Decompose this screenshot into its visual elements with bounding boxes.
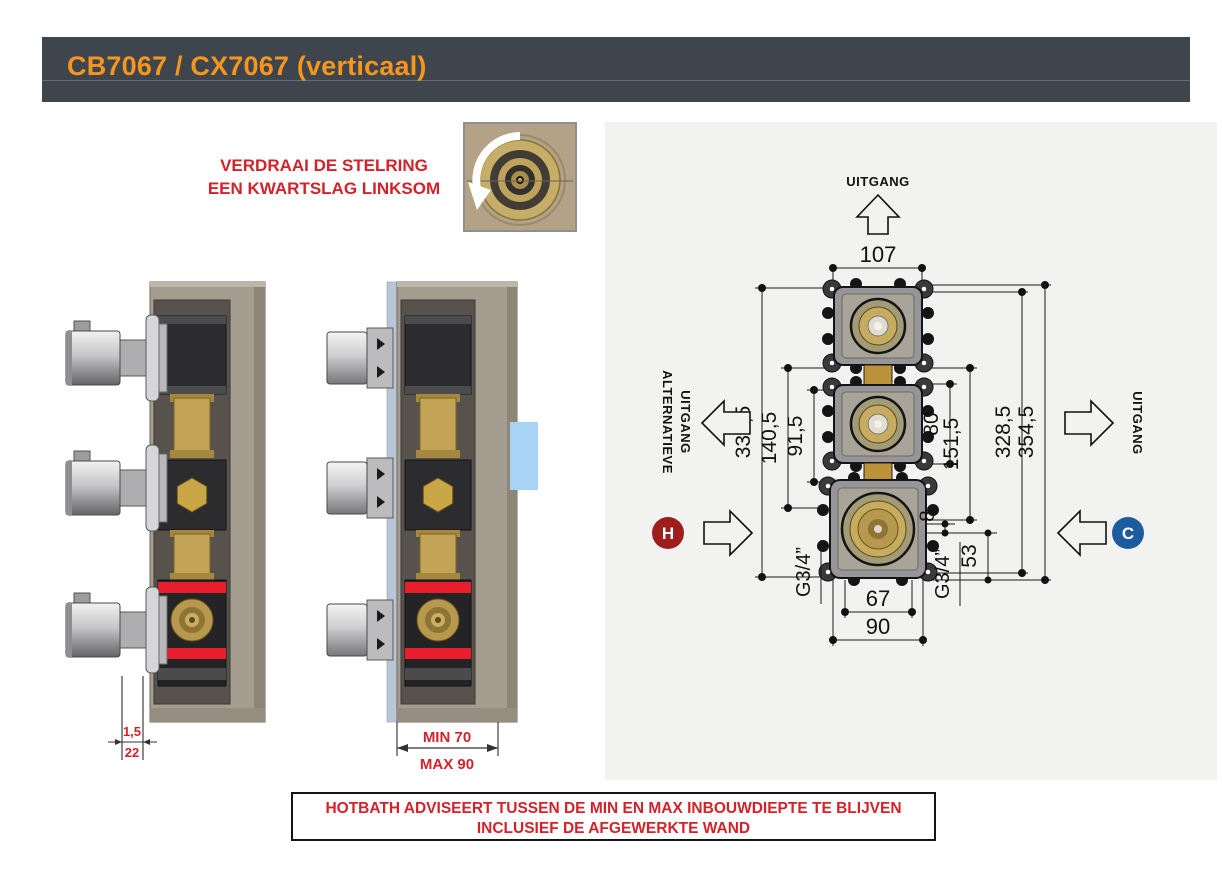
outlet-highlight (510, 422, 538, 490)
build-depth-dim: MIN 70 MAX 90 (397, 722, 498, 773)
arrow-right-icon (1065, 401, 1113, 445)
cold-label: C (1122, 524, 1134, 543)
valve-cartridge-middle (822, 376, 934, 472)
dim-53: 53 (958, 530, 992, 584)
dim-90: 90 (829, 614, 927, 644)
instruction-text: VERDRAAI DE STELRING EEN KWARTSLAG LINKS… (203, 154, 445, 200)
notice-box: HOTBATH ADVISEERT TUSSEN DE MIN EN MAX I… (291, 792, 936, 841)
thread-label-right: G3/4” (932, 542, 960, 606)
brass-connector-1 (864, 365, 892, 387)
header-bar: CB7067 / CX7067 (verticaal) (42, 37, 1190, 102)
thread-label-left: G3/4” (793, 540, 821, 604)
dimension-drawing-panel: UITGANG (605, 122, 1217, 780)
dimension-drawing: UITGANG (605, 122, 1217, 780)
red-marker-top (158, 582, 226, 593)
handle-bottom (66, 587, 167, 673)
red-marker-bottom (158, 648, 226, 659)
svg-text:67: 67 (866, 586, 890, 611)
svg-text:354,5: 354,5 (1015, 406, 1038, 459)
cartridge-stack (158, 316, 226, 686)
page-title: CB7067 / CX7067 (verticaal) (67, 51, 427, 82)
svg-text:151,5: 151,5 (940, 418, 963, 471)
instruction-line-1: VERDRAAI DE STELRING (203, 154, 445, 177)
page: CB7067 / CX7067 (verticaal) VERDRAAI DE … (0, 0, 1222, 894)
handle-top (327, 328, 393, 388)
notice-line-2: INCLUSIEF DE AFGEWERKTE WAND (293, 819, 934, 839)
dim-22: 22 (125, 745, 139, 760)
dim-max-90: MAX 90 (420, 756, 474, 773)
red-marker-top (405, 582, 471, 593)
svg-text:107: 107 (860, 242, 897, 267)
stelring-image (465, 124, 575, 230)
handle-middle (327, 458, 393, 518)
svg-text:G3/4”: G3/4” (932, 549, 954, 599)
handle-bottom (327, 600, 393, 660)
dim-1-5: 1,5 (123, 724, 141, 739)
cartridge-stack (405, 316, 471, 686)
handle-middle (66, 445, 167, 531)
svg-text:90: 90 (866, 614, 890, 639)
side-view-finished: 1,5 22 (62, 276, 272, 768)
dim-151-5: 151,5 (940, 364, 974, 524)
side-view-rough-in: MIN 70 MAX 90 (325, 276, 540, 778)
svg-text:53: 53 (958, 544, 981, 567)
outlet-alt-label-2: UITGANG (678, 390, 693, 453)
dim-width-ports: 107 (829, 242, 926, 272)
instruction-line-2: EEN KWARTSLAG LINKSOM (203, 177, 445, 200)
arrow-up-icon (857, 195, 899, 234)
dim-67: 67 (841, 586, 916, 616)
svg-text:140,5: 140,5 (758, 412, 781, 465)
outlet-alt-label-1: ALTERNATIEVE (660, 370, 675, 474)
hot-arrow-icon (704, 511, 752, 555)
header-divider (42, 80, 1190, 81)
dim-min-70: MIN 70 (423, 729, 471, 746)
svg-text:91,5: 91,5 (784, 416, 807, 457)
valve-cartridge-top (822, 278, 934, 374)
svg-text:8: 8 (916, 510, 939, 522)
dim-354-5: 354,5 (1015, 281, 1049, 584)
outlet-top-label: UITGANG (846, 174, 909, 189)
outlet-right-label: UITGANG (1130, 391, 1145, 454)
valve-cartridge-bottom (817, 472, 939, 586)
dim-91-5: 91,5 (784, 386, 818, 486)
cold-arrow-icon (1058, 511, 1106, 555)
hot-badge: H (652, 517, 684, 549)
svg-text:328,5: 328,5 (992, 406, 1015, 459)
notice-line-1: HOTBATH ADVISEERT TUSSEN DE MIN EN MAX I… (293, 799, 934, 819)
stelring-photo (463, 122, 577, 232)
red-marker-bottom (405, 648, 471, 659)
svg-text:G3/4”: G3/4” (793, 547, 815, 597)
cold-badge: C (1112, 517, 1144, 549)
hot-label: H (662, 524, 674, 543)
handle-top (66, 315, 167, 401)
